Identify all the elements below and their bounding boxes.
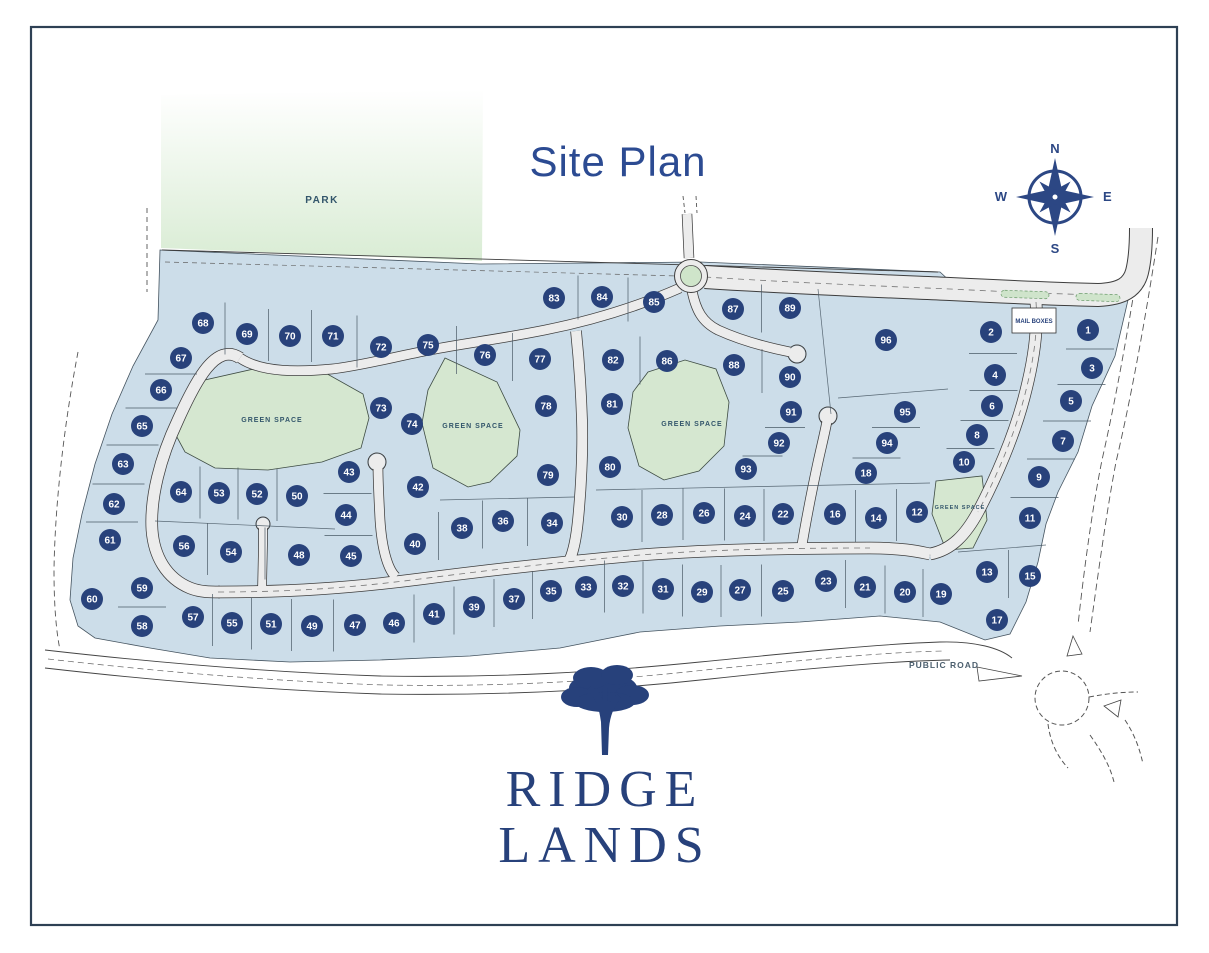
- compass-east-label: E: [1103, 189, 1112, 204]
- lot-marker-84[interactable]: 84: [591, 286, 613, 308]
- lot-marker-37[interactable]: 37: [503, 588, 525, 610]
- lot-number: 94: [881, 439, 893, 450]
- mail-boxes: MAIL BOXES: [1012, 308, 1056, 333]
- lot-marker-55[interactable]: 55: [221, 612, 243, 634]
- lot-number: 47: [349, 621, 361, 632]
- compass-rose: N S E W: [995, 141, 1112, 256]
- lot-marker-42[interactable]: 42: [407, 476, 429, 498]
- lot-marker-54[interactable]: 54: [220, 541, 242, 563]
- lot-number: 44: [340, 511, 352, 522]
- lot-number: 59: [136, 584, 148, 595]
- lot-number: 2: [988, 328, 994, 339]
- lot-number: 90: [784, 373, 796, 384]
- lot-number: 67: [175, 354, 187, 365]
- lot-marker-75[interactable]: 75: [417, 334, 439, 356]
- lot-number: 63: [117, 460, 129, 471]
- lot-marker-23[interactable]: 23: [815, 570, 837, 592]
- lot-marker-95[interactable]: 95: [894, 401, 916, 423]
- lot-number: 24: [739, 512, 751, 523]
- lot-number: 80: [604, 463, 616, 474]
- lot-marker-28[interactable]: 28: [651, 504, 673, 526]
- lot-marker-27[interactable]: 27: [729, 579, 751, 601]
- lot-number: 73: [375, 404, 387, 415]
- lot-marker-68[interactable]: 68: [192, 312, 214, 334]
- lot-marker-92[interactable]: 92: [768, 432, 790, 454]
- lot-number: 20: [899, 588, 911, 599]
- lot-number: 48: [293, 551, 305, 562]
- lot-marker-19[interactable]: 19: [930, 583, 952, 605]
- tree-icon: [561, 665, 649, 755]
- lot-marker-17[interactable]: 17: [986, 609, 1008, 631]
- lot-marker-3[interactable]: 3: [1081, 357, 1103, 379]
- lot-number: 65: [136, 422, 148, 433]
- lot-number: 39: [468, 603, 480, 614]
- lot-number: 15: [1024, 572, 1036, 583]
- lot-number: 93: [740, 465, 752, 476]
- entrance-roundabout: [675, 260, 708, 293]
- lot-marker-65[interactable]: 65: [131, 415, 153, 437]
- lot-marker-86[interactable]: 86: [656, 350, 678, 372]
- park-area: [161, 90, 483, 261]
- lot-marker-7[interactable]: 7: [1052, 430, 1074, 452]
- lot-marker-63[interactable]: 63: [112, 453, 134, 475]
- lot-number: 52: [251, 490, 263, 501]
- lot-marker-78[interactable]: 78: [535, 395, 557, 417]
- lot-marker-32[interactable]: 32: [612, 575, 634, 597]
- lot-marker-2[interactable]: 2: [980, 321, 1002, 343]
- lot-number: 36: [497, 517, 509, 528]
- lot-marker-62[interactable]: 62: [103, 493, 125, 515]
- lot-number: 49: [306, 622, 318, 633]
- lot-number: 79: [542, 471, 554, 482]
- lot-marker-77[interactable]: 77: [529, 348, 551, 370]
- lot-number: 8: [974, 431, 980, 442]
- lot-marker-93[interactable]: 93: [735, 458, 757, 480]
- lot-marker-5[interactable]: 5: [1060, 390, 1082, 412]
- lot-marker-14[interactable]: 14: [865, 507, 887, 529]
- lot-number: 71: [327, 332, 339, 343]
- lot-marker-57[interactable]: 57: [182, 606, 204, 628]
- lot-number: 58: [136, 622, 148, 633]
- lot-number: 76: [479, 351, 491, 362]
- lot-number: 96: [880, 336, 892, 347]
- lot-marker-79[interactable]: 79: [537, 464, 559, 486]
- lot-number: 82: [607, 356, 619, 367]
- logo-line1: RIDGE: [506, 761, 705, 818]
- lot-marker-48[interactable]: 48: [288, 544, 310, 566]
- lot-marker-24[interactable]: 24: [734, 505, 756, 527]
- lot-number: 18: [860, 469, 872, 480]
- lot-marker-36[interactable]: 36: [492, 510, 514, 532]
- lot-marker-61[interactable]: 61: [99, 529, 121, 551]
- lot-number: 43: [343, 468, 355, 479]
- lot-marker-6[interactable]: 6: [981, 395, 1003, 417]
- lot-marker-26[interactable]: 26: [693, 502, 715, 524]
- lot-number: 68: [197, 319, 209, 330]
- lot-number: 34: [546, 519, 558, 530]
- lot-marker-29[interactable]: 29: [691, 581, 713, 603]
- lot-number: 74: [406, 420, 418, 431]
- lot-number: 17: [991, 616, 1003, 627]
- logo: RIDGE LANDS: [498, 665, 711, 874]
- lot-marker-15[interactable]: 15: [1019, 565, 1041, 587]
- lot-number: 70: [284, 332, 296, 343]
- lot-marker-43[interactable]: 43: [338, 461, 360, 483]
- lot-marker-13[interactable]: 13: [976, 561, 998, 583]
- lot-number: 75: [422, 341, 434, 352]
- lot-number: 95: [899, 408, 911, 419]
- lot-number: 13: [981, 568, 993, 579]
- page-title: Site Plan: [529, 138, 706, 185]
- green-space-label: GREEN SPACE: [442, 423, 503, 430]
- lot-number: 85: [648, 298, 660, 309]
- lot-number: 25: [777, 587, 789, 598]
- lot-marker-11[interactable]: 11: [1019, 507, 1041, 529]
- lot-marker-96[interactable]: 96: [875, 329, 897, 351]
- lot-marker-39[interactable]: 39: [463, 596, 485, 618]
- lot-number: 69: [241, 330, 253, 341]
- lot-number: 23: [820, 577, 832, 588]
- lot-number: 26: [698, 509, 710, 520]
- lot-number: 77: [534, 355, 546, 366]
- lot-marker-18[interactable]: 18: [855, 462, 877, 484]
- lot-marker-74[interactable]: 74: [401, 413, 423, 435]
- lot-marker-41[interactable]: 41: [423, 603, 445, 625]
- se-roundabout: [977, 636, 1143, 782]
- lot-number: 55: [226, 619, 238, 630]
- lot-number: 89: [784, 304, 796, 315]
- lot-marker-25[interactable]: 25: [772, 580, 794, 602]
- lot-marker-53[interactable]: 53: [208, 482, 230, 504]
- lot-marker-94[interactable]: 94: [876, 432, 898, 454]
- lot-marker-12[interactable]: 12: [906, 501, 928, 523]
- lot-marker-70[interactable]: 70: [279, 325, 301, 347]
- lot-marker-81[interactable]: 81: [601, 393, 623, 415]
- lot-number: 28: [656, 511, 668, 522]
- lot-marker-89[interactable]: 89: [779, 297, 801, 319]
- lot-marker-85[interactable]: 85: [643, 291, 665, 313]
- lot-marker-87[interactable]: 87: [722, 298, 744, 320]
- lot-marker-47[interactable]: 47: [344, 614, 366, 636]
- lot-number: 38: [456, 524, 468, 535]
- green-space-label: GREEN SPACE: [241, 417, 302, 424]
- lot-number: 60: [86, 595, 98, 606]
- lot-marker-59[interactable]: 59: [131, 577, 153, 599]
- lot-number: 51: [265, 620, 277, 631]
- lot-number: 1: [1085, 326, 1091, 337]
- lot-number: 31: [657, 585, 669, 596]
- lot-number: 88: [728, 361, 740, 372]
- lot-number: 29: [696, 588, 708, 599]
- lot-number: 86: [661, 357, 673, 368]
- lot-marker-46[interactable]: 46: [383, 612, 405, 634]
- lot-number: 41: [428, 610, 440, 621]
- green-space-label: GREEN SPACE: [661, 421, 722, 428]
- green-space-label: GREEN SPACE: [935, 505, 986, 511]
- lot-number: 72: [375, 343, 387, 354]
- public-road-label: PUBLIC ROAD: [909, 660, 979, 670]
- lot-number: 66: [155, 386, 167, 397]
- lot-marker-16[interactable]: 16: [824, 503, 846, 525]
- lot-number: 40: [409, 540, 421, 551]
- lot-number: 12: [911, 508, 923, 519]
- lot-marker-1[interactable]: 1: [1077, 319, 1099, 341]
- lot-number: 6: [989, 402, 995, 413]
- lot-marker-50[interactable]: 50: [286, 485, 308, 507]
- lot-marker-8[interactable]: 8: [966, 424, 988, 446]
- lot-number: 50: [291, 492, 303, 503]
- lot-marker-20[interactable]: 20: [894, 581, 916, 603]
- lot-number: 5: [1068, 397, 1074, 408]
- lot-marker-4[interactable]: 4: [984, 364, 1006, 386]
- lot-marker-52[interactable]: 52: [246, 483, 268, 505]
- lot-number: 35: [545, 587, 557, 598]
- lot-number: 78: [540, 402, 552, 413]
- lot-marker-40[interactable]: 40: [404, 533, 426, 555]
- lot-number: 32: [617, 582, 629, 593]
- lot-number: 11: [1025, 514, 1036, 525]
- lot-marker-49[interactable]: 49: [301, 615, 323, 637]
- compass-south-label: S: [1051, 241, 1060, 256]
- lot-number: 92: [773, 439, 785, 450]
- lot-number: 21: [859, 583, 871, 594]
- lot-marker-22[interactable]: 22: [772, 503, 794, 525]
- lot-marker-88[interactable]: 88: [723, 354, 745, 376]
- lot-marker-76[interactable]: 76: [474, 344, 496, 366]
- lot-number: 33: [580, 583, 592, 594]
- lot-number: 81: [606, 400, 618, 411]
- lot-marker-73[interactable]: 73: [370, 397, 392, 419]
- lot-marker-69[interactable]: 69: [236, 323, 258, 345]
- lot-number: 16: [829, 510, 841, 521]
- lot-marker-82[interactable]: 82: [602, 349, 624, 371]
- lot-marker-30[interactable]: 30: [611, 506, 633, 528]
- lot-marker-35[interactable]: 35: [540, 580, 562, 602]
- lot-marker-83[interactable]: 83: [543, 287, 565, 309]
- lot-marker-64[interactable]: 64: [170, 481, 192, 503]
- lot-marker-21[interactable]: 21: [854, 576, 876, 598]
- lot-number: 45: [345, 552, 357, 563]
- lot-marker-10[interactable]: 10: [953, 451, 975, 473]
- lot-number: 27: [734, 586, 746, 597]
- lot-number: 53: [213, 489, 225, 500]
- lot-marker-34[interactable]: 34: [541, 512, 563, 534]
- lot-marker-58[interactable]: 58: [131, 615, 153, 637]
- mail-boxes-label: MAIL BOXES: [1015, 319, 1052, 325]
- lot-marker-71[interactable]: 71: [322, 325, 344, 347]
- lot-number: 87: [727, 305, 739, 316]
- lot-number: 19: [935, 590, 947, 601]
- compass-west-label: W: [995, 189, 1008, 204]
- lot-marker-45[interactable]: 45: [340, 545, 362, 567]
- lot-number: 64: [175, 488, 187, 499]
- lot-marker-44[interactable]: 44: [335, 504, 357, 526]
- site-plan-map: PARK: [0, 0, 1209, 953]
- lot-number: 7: [1060, 437, 1066, 448]
- lot-marker-72[interactable]: 72: [370, 336, 392, 358]
- lot-number: 4: [992, 371, 998, 382]
- lot-number: 91: [785, 408, 797, 419]
- lot-number: 83: [548, 294, 560, 305]
- lot-number: 61: [104, 536, 116, 547]
- lot-number: 84: [596, 293, 608, 304]
- compass-north-label: N: [1050, 141, 1059, 156]
- lot-number: 30: [616, 513, 628, 524]
- lot-number: 14: [870, 514, 882, 525]
- lot-marker-56[interactable]: 56: [173, 535, 195, 557]
- lot-number: 22: [777, 510, 789, 521]
- lot-marker-80[interactable]: 80: [599, 456, 621, 478]
- logo-line2: LANDS: [498, 817, 711, 874]
- lot-number: 46: [388, 619, 400, 630]
- lot-number: 54: [225, 548, 237, 559]
- lot-number: 3: [1089, 364, 1095, 375]
- lot-marker-9[interactable]: 9: [1028, 466, 1050, 488]
- lot-number: 57: [187, 613, 199, 624]
- lot-marker-38[interactable]: 38: [451, 517, 473, 539]
- lot-number: 56: [178, 542, 190, 553]
- lot-marker-31[interactable]: 31: [652, 578, 674, 600]
- park-label: PARK: [305, 195, 339, 206]
- lot-marker-90[interactable]: 90: [779, 366, 801, 388]
- lot-marker-66[interactable]: 66: [150, 379, 172, 401]
- lot-marker-51[interactable]: 51: [260, 613, 282, 635]
- lot-marker-60[interactable]: 60: [81, 588, 103, 610]
- lot-marker-67[interactable]: 67: [170, 347, 192, 369]
- lot-number: 37: [508, 595, 520, 606]
- lot-number: 62: [108, 500, 120, 511]
- lot-number: 42: [412, 483, 424, 494]
- lot-marker-91[interactable]: 91: [780, 401, 802, 423]
- site-plan-page: PARK: [0, 0, 1209, 953]
- lot-number: 9: [1036, 473, 1042, 484]
- lot-number: 10: [958, 458, 970, 469]
- lot-marker-33[interactable]: 33: [575, 576, 597, 598]
